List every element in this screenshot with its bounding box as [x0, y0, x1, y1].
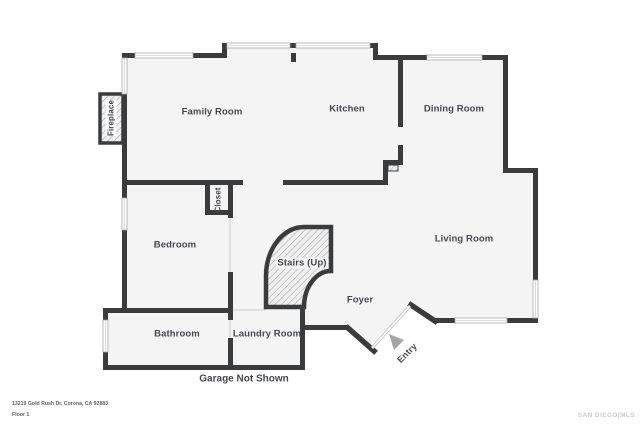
wall-bedroom-right-lower [228, 272, 233, 313]
wall-bottom [103, 365, 305, 370]
window-dining-top [427, 55, 482, 60]
window-kitchen-left [227, 43, 290, 48]
wall-bath-laundry-upper [228, 313, 233, 320]
footer-floor: Floor 1 [12, 412, 29, 418]
wall-bath-laundry-lower [228, 338, 233, 365]
window-bedroom-left [122, 198, 127, 230]
wall-step-c [503, 168, 538, 173]
footer-address: 13219 Gold Rush Dr, Corona, CA 92883 [12, 401, 108, 407]
room-label-stairs: Stairs (Up) [275, 258, 328, 269]
room-label-foyer: Foyer [347, 295, 373, 306]
wall-kitchen-dining-divider [398, 60, 403, 127]
wall-bathroom-step [103, 308, 233, 313]
room-label-closet: Closet [214, 187, 223, 212]
floorplan-page: Family Room Kitchen Dining Room Bedroom … [0, 0, 640, 427]
room-label-family-room: Family Room [182, 107, 243, 118]
wall-divider-stub [398, 145, 403, 165]
room-label-fireplace: Fireplace [106, 100, 117, 136]
window-living-right [533, 280, 538, 318]
window-living-bottom [455, 318, 507, 323]
wall-dining-right [503, 55, 508, 173]
wall-bedroom-right-upper [228, 183, 233, 218]
wall-kitchen-window-mullion [290, 43, 296, 48]
garage-note: Garage Not Shown [199, 374, 288, 385]
window-family-top [135, 53, 193, 58]
wall-kitchen-bottom [283, 180, 388, 185]
room-label-laundry-room: Laundry Room [233, 329, 301, 340]
room-label-bedroom: Bedroom [154, 240, 196, 251]
wall-family-bottom [122, 180, 243, 185]
entry-arrow-icon [389, 334, 404, 350]
floorplan-drawing [0, 0, 640, 427]
wall-kitchen-window-stub [291, 53, 296, 62]
room-label-kitchen: Kitchen [329, 104, 365, 115]
room-label-living-room: Living Room [435, 234, 494, 245]
room-label-dining-room: Dining Room [424, 104, 484, 115]
mls-watermark: SAN DIEGO|MLS [578, 412, 635, 419]
window-bathroom-left [103, 320, 108, 352]
window-kitchen-right [296, 43, 370, 48]
window-family-left [122, 58, 127, 94]
wall-foyer-horizontal [300, 325, 348, 330]
kitchen-nook-box [388, 165, 398, 171]
room-label-bathroom: Bathroom [154, 329, 200, 340]
